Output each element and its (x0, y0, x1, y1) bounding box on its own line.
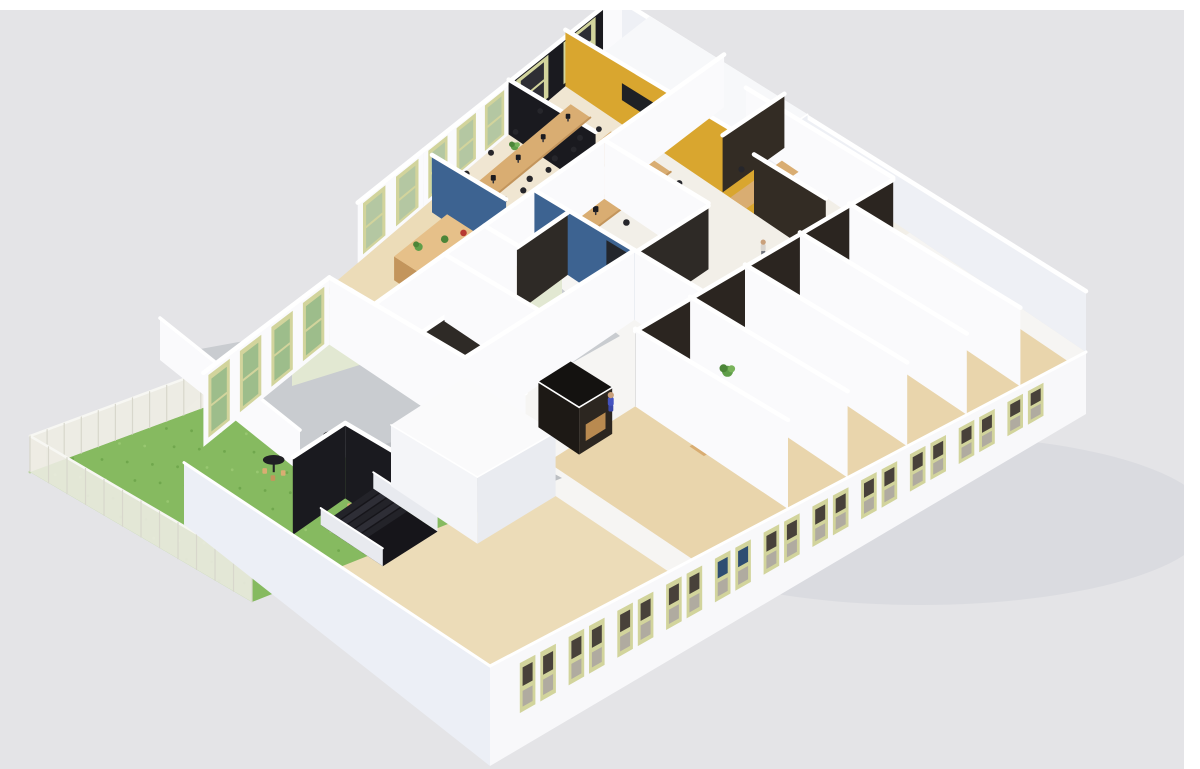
office-floorplan-3d-render (0, 0, 1200, 769)
floorplan-scene-svg (0, 0, 1200, 769)
person-blue-overalls (608, 392, 614, 412)
